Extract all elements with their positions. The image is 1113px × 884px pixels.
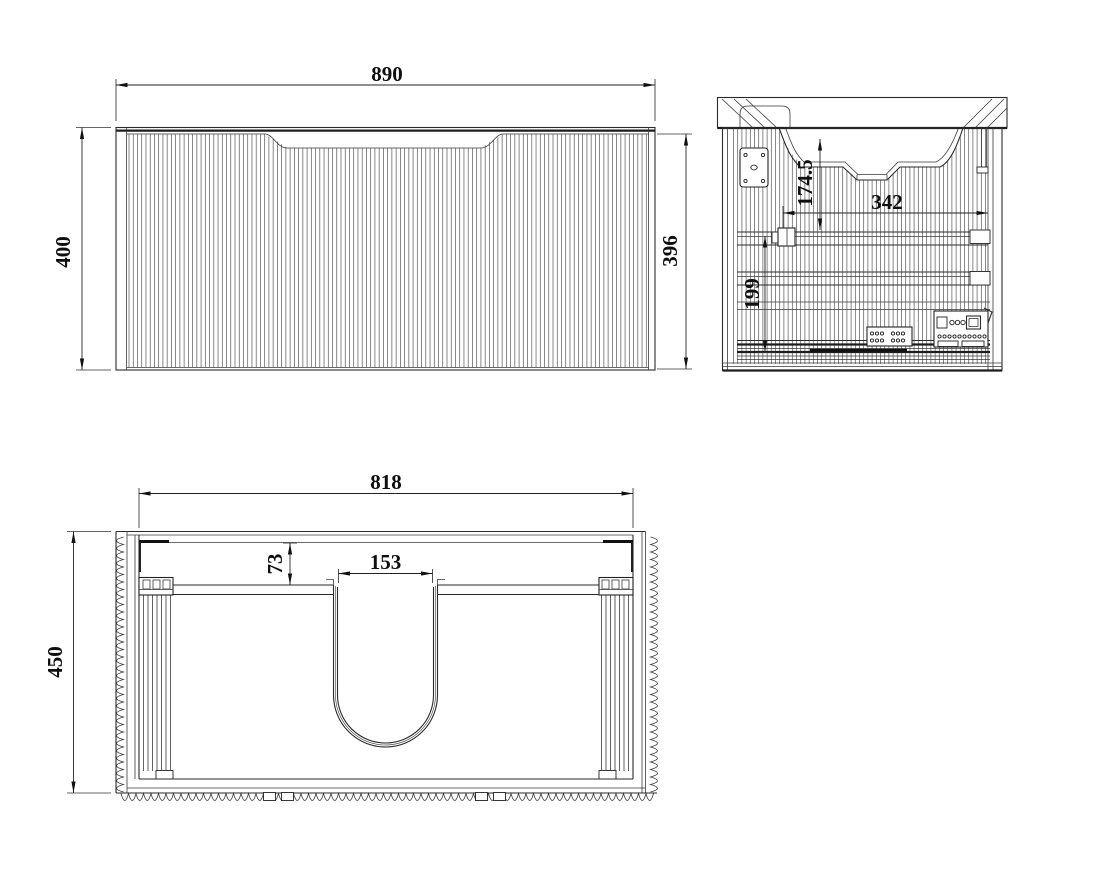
plumbing-cutout [334,585,438,747]
slide-left [139,578,173,780]
dim-side-basin-depth-text: 174.5 [793,159,817,206]
dim-front-height-right-text: 396 [658,235,682,267]
slide-tab [938,341,958,347]
side-view: 174.5 342 199 [718,98,1008,371]
drawing-sheet: 890 400 396 [0,0,1113,884]
dim-front-height-right: 396 [657,134,692,369]
dim-plan-inner-width-text: 818 [370,470,402,494]
dim-plan-depth: 450 [43,532,111,794]
rim-corner-hatch-left [722,99,776,127]
plan-view: 818 450 73 153 [43,470,658,801]
screw-block-left [867,327,912,346]
scallop-edge-right [651,537,658,792]
dim-side-drawer-zone: 199 [740,236,776,353]
overflow-foot [977,167,988,173]
rail-right-block [970,272,990,286]
scallop-edge-front [121,794,654,801]
slide-rear-cap [599,771,616,780]
slide-bars [144,595,629,771]
dim-plan-cutout-width-text: 153 [370,550,402,574]
slide-rear-cap [156,771,173,780]
dim-side-drawer-zone-text: 199 [740,278,764,310]
dim-plan-back-offset: 73 [263,543,297,585]
slide-tab [962,341,984,347]
rail-left-bracket [778,228,795,246]
slide-right [599,578,633,780]
fluted-edge-scallops [117,537,658,801]
dim-plan-cutout-width: 153 [339,550,433,583]
front-rail [173,580,599,595]
rail-right-block [970,230,990,244]
front-view: 890 400 396 [51,62,692,370]
dim-front-width: 890 [116,62,655,121]
slide-latch [937,317,947,328]
rail-left-bracket-tab [772,232,778,243]
dim-front-height-left: 400 [51,128,111,371]
rim-corner-hatch-right [964,99,1007,127]
dim-plan-back-offset-text: 73 [263,554,287,575]
dim-front-height-left-text: 400 [51,236,75,268]
dim-front-width-text: 890 [371,62,403,86]
dim-side-rail-span-text: 342 [871,190,903,214]
scallop-edge-left [117,537,124,792]
dim-plan-inner-width: 818 [139,470,633,528]
technical-drawing: 890 400 396 [0,0,1113,884]
front-flutes [129,134,646,368]
dim-plan-depth-text: 450 [43,646,67,678]
